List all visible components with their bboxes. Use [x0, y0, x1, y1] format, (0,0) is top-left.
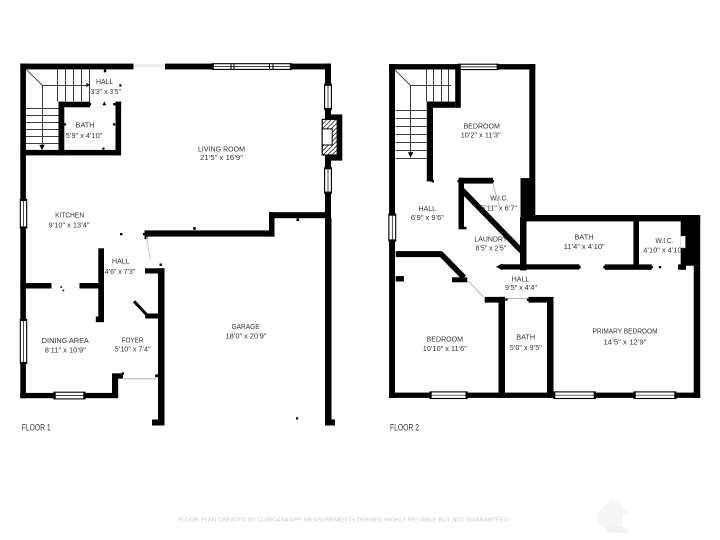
svg-text:5’0" x 9’5": 5’0" x 9’5" — [510, 343, 542, 352]
svg-text:DINING AREA: DINING AREA — [42, 336, 90, 345]
svg-text:W.I.C.: W.I.C. — [656, 236, 674, 245]
svg-text:10’2" x 11’3": 10’2" x 11’3" — [461, 130, 501, 139]
svg-text:21’5" x 16’9": 21’5" x 16’9" — [200, 153, 243, 162]
svg-text:BEDROOM: BEDROOM — [427, 335, 464, 344]
svg-text:W.I.C.: W.I.C. — [490, 194, 508, 203]
svg-text:5’10" x 7’4": 5’10" x 7’4" — [115, 345, 151, 354]
svg-text:FLOOR 2: FLOOR 2 — [390, 423, 419, 433]
svg-text:BATH: BATH — [516, 333, 535, 342]
svg-text:BEDROOM: BEDROOM — [463, 121, 500, 130]
svg-text:5’9" x 4’10": 5’9" x 4’10" — [66, 131, 103, 140]
svg-text:4’6" x 7’3": 4’6" x 7’3" — [105, 267, 136, 276]
svg-text:HALL: HALL — [419, 204, 437, 213]
svg-text:14’5" x 12’9": 14’5" x 12’9" — [604, 337, 647, 346]
svg-text:HALL: HALL — [96, 77, 114, 86]
svg-text:BATH: BATH — [76, 120, 95, 129]
svg-text:HALL: HALL — [112, 256, 130, 265]
svg-text:8’11" x 10’9": 8’11" x 10’9" — [45, 346, 86, 355]
svg-text:LAUNDRY: LAUNDRY — [474, 234, 507, 243]
svg-text:3’3" x 3’5": 3’3" x 3’5" — [91, 87, 122, 96]
svg-text:11’4" x 4’10": 11’4" x 4’10" — [564, 242, 605, 251]
svg-text:6’9" x 9’6": 6’9" x 9’6" — [411, 213, 444, 222]
svg-text:9’5" x 4’4": 9’5" x 4’4" — [505, 283, 537, 292]
svg-text:9’10" x 13’4": 9’10" x 13’4" — [49, 221, 90, 230]
svg-text:5’11" x 6’7": 5’11" x 6’7" — [481, 204, 517, 213]
svg-text:10’10" x 11’6": 10’10" x 11’6" — [423, 344, 467, 353]
svg-text:GARAGE: GARAGE — [232, 322, 260, 331]
svg-text:8’5" x 2’5": 8’5" x 2’5" — [476, 244, 507, 253]
svg-text:FLOOR 1: FLOOR 1 — [22, 423, 51, 433]
svg-text:BATH: BATH — [575, 233, 594, 242]
svg-text:PRIMARY BEDROOM: PRIMARY BEDROOM — [593, 327, 658, 336]
svg-text:FLOOR PLAN CREATED BY CUBICASA: FLOOR PLAN CREATED BY CUBICASA APP. MEAS… — [178, 518, 510, 524]
svg-text:4’10" x 4’10": 4’10" x 4’10" — [643, 246, 684, 255]
svg-text:18’0" x 20’9": 18’0" x 20’9" — [226, 331, 267, 340]
svg-text:FOYER: FOYER — [122, 335, 144, 344]
svg-text:KITCHEN: KITCHEN — [55, 211, 84, 220]
